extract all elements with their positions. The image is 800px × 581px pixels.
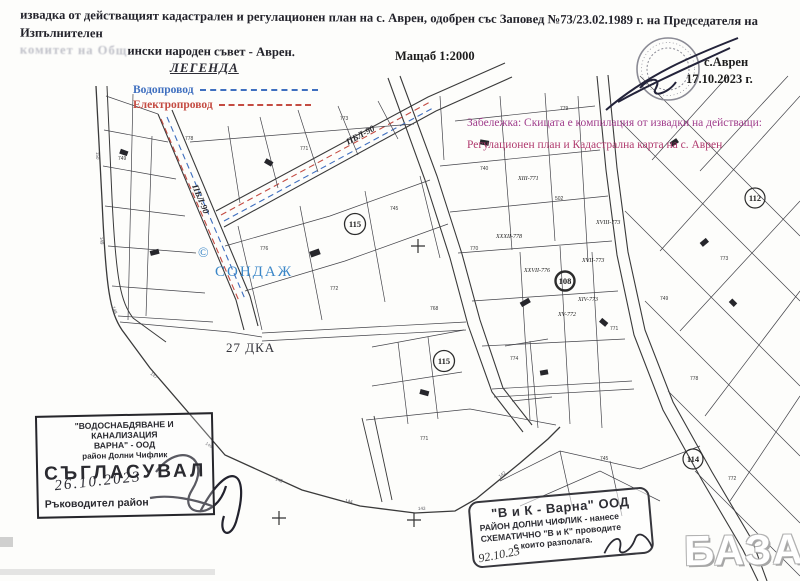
water-line-sample: [200, 89, 318, 91]
svg-text:772: 772: [728, 476, 737, 482]
date-label: 17.10.2023 г.: [686, 72, 753, 87]
svg-text:749: 749: [660, 296, 669, 302]
svg-text:772: 772: [330, 286, 339, 292]
buildings: [119, 138, 737, 396]
sondazh-label: СОНДАЖ: [215, 264, 293, 281]
parcel-label: XV-772: [557, 312, 576, 318]
svg-text:142: 142: [498, 470, 507, 479]
approval-signer-label: Ръководител район: [45, 495, 207, 510]
svg-text:740: 740: [480, 166, 489, 172]
parcel-circle-112: 112: [749, 193, 761, 203]
parcel-label: XIV-773: [577, 297, 598, 303]
svg-text:144: 144: [345, 498, 354, 504]
legend-water-label: Водопровод: [133, 84, 194, 96]
svg-text:143: 143: [418, 506, 426, 511]
parcel-label: XXXII-778: [495, 234, 522, 240]
scan-smudge-dark: [0, 537, 13, 547]
note-line-1: Забележка: Скицата е компилация от извад…: [467, 112, 762, 134]
scan-smudge: [0, 569, 215, 575]
legend-water-row: Водопровод: [133, 84, 318, 96]
power-line-sample: [219, 104, 311, 106]
street-label-2: ПБЛ-90: [343, 123, 376, 147]
svg-text:749: 749: [118, 156, 127, 162]
bazar-watermark: БАЗАР: [684, 525, 800, 576]
street-labels: ПБЛ-90 ПБЛ-90: [190, 123, 377, 216]
street-p1: [158, 110, 258, 330]
svg-text:145: 145: [275, 476, 284, 484]
place-label: с.Аврен: [704, 55, 748, 70]
parcel-circles: 115 115 108 112 114: [345, 188, 766, 469]
svg-text:774: 774: [510, 356, 519, 362]
vik-signature: [599, 527, 657, 560]
legend-power-label: Електропровод: [133, 99, 213, 111]
copyright-symbol: ©: [198, 246, 209, 262]
area-27dka-label: 27 ДКА: [226, 340, 275, 356]
note-block: Забележка: Скицата е компилация от извад…: [467, 112, 762, 156]
legend-power-row: Електропровод: [133, 99, 311, 111]
parcel-label: XXVII-776: [523, 268, 550, 274]
svg-text:148: 148: [111, 306, 118, 315]
svg-text:149: 149: [99, 237, 105, 245]
svg-text:771: 771: [300, 146, 309, 152]
svg-text:778: 778: [185, 136, 194, 142]
parcel-label: XVIII-773: [595, 220, 620, 226]
svg-text:502: 502: [555, 196, 564, 202]
scale-label: Мащаб 1:2000: [395, 49, 475, 64]
svg-text:776: 776: [260, 246, 269, 252]
svg-text:773: 773: [340, 116, 349, 122]
small-road: [362, 416, 392, 502]
parcel-circle-115a: 115: [349, 219, 361, 229]
parcel-circle-108: 108: [559, 276, 572, 286]
vik-stamp: "В и К - Варна" ООД РАЙОН ДОЛНИ ЧИФЛИК -…: [467, 486, 654, 569]
title-line-2-faded: комитет на Общ: [20, 43, 128, 58]
scanned-cadastral-plan: 115 115 108 112 114 ПБЛ-90 ПБЛ-90 XXVII-…: [0, 0, 800, 581]
parcel-label: XIII-771: [517, 176, 539, 182]
vik-handwritten-date: 92.10.23: [477, 544, 521, 567]
svg-text:768: 768: [430, 306, 439, 312]
svg-text:745: 745: [390, 206, 399, 212]
legend-title: ЛЕГЕНДА: [170, 60, 239, 76]
svg-text:770: 770: [470, 246, 479, 252]
svg-text:745: 745: [600, 456, 609, 462]
note-line-2: Регулационен план и Кадастрална карта на…: [467, 134, 762, 156]
svg-text:147: 147: [149, 371, 158, 380]
parcel-circle-114: 114: [687, 454, 700, 464]
svg-text:150: 150: [95, 152, 100, 160]
parcel-circle-115b: 115: [438, 356, 450, 366]
parcel-label: XVII-773: [581, 258, 604, 264]
svg-text:771: 771: [420, 436, 429, 442]
grid-crosses: [272, 239, 425, 527]
svg-text:773: 773: [720, 256, 729, 262]
approval-stamp: "ВОДОСНАБДЯВАНЕ И КАНАЛИЗАЦИЯ ВАРНА" - О…: [35, 412, 215, 519]
svg-text:778: 778: [690, 376, 699, 382]
svg-text:771: 771: [610, 326, 619, 332]
